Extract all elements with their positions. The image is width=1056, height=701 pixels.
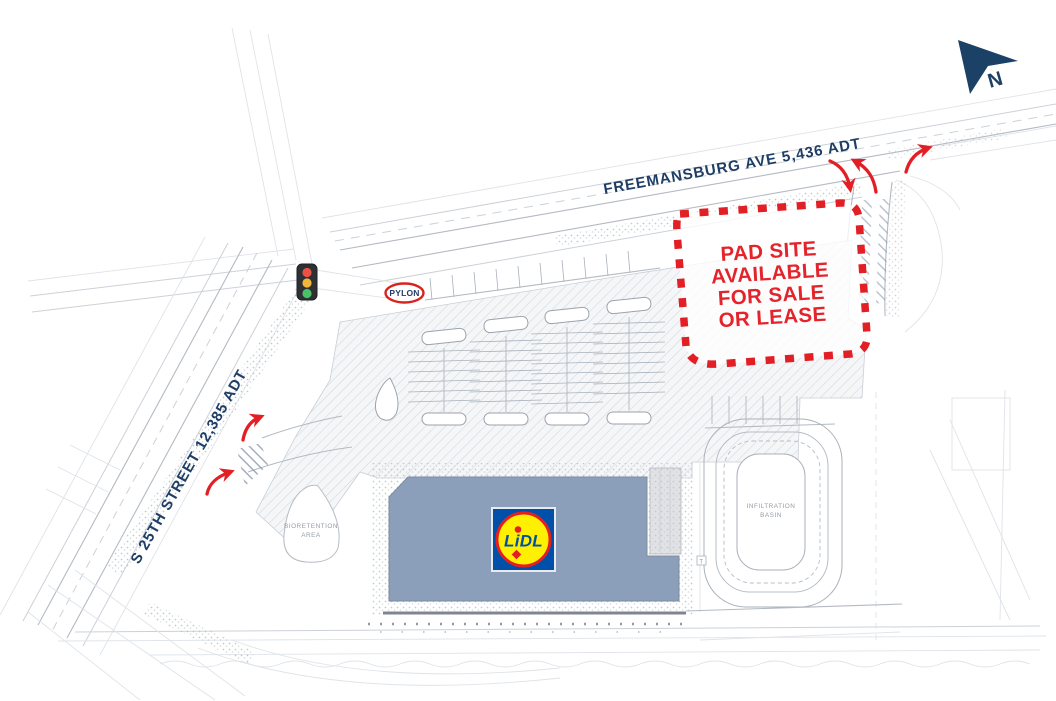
lidl-logo-text: LiDL [504,532,543,551]
signal-amber-light [302,278,311,287]
signal-red-light [302,268,311,277]
north-arrow-icon: N [958,40,1018,94]
traffic-signal-icon [297,264,317,300]
lidl-logo-i-dot [515,526,522,533]
basin-label-line1: INFILTRATION [747,503,796,510]
access-arrow-s25th-north [243,417,260,440]
site-plan-drawing: BIORETENTION AREA INFILTRATION BASIN T L… [0,0,1056,701]
bioretention-label-line2: AREA [301,532,321,539]
access-arrow-site-entry [830,161,850,188]
s-25th-street-label: S 25TH STREET 12,385 ADT [127,367,250,567]
pylon-label: PYLON [389,288,419,298]
basin-label-line2: BASIN [760,512,782,519]
lidl-building-group: LiDL [368,463,902,632]
crosswalk-hatch [237,443,268,486]
site-plan-page: BIORETENTION AREA INFILTRATION BASIN T L… [0,0,1056,701]
access-arrow-s25th-south [207,472,230,494]
freemansburg-ave-label: FREEMANSBURG AVE 5,436 ADT [602,135,862,198]
pad-site-callout: PAD SITE AVAILABLE FOR SALE OR LEASE [677,203,867,364]
transformer-label: T [699,559,703,566]
bioretention-label-line1: BIORETENTION [284,523,338,530]
pylon-badge: PYLON [386,284,424,303]
lidl-logo: LiDL [492,508,555,571]
signal-green-light [302,289,311,298]
north-label: N [985,68,1005,93]
